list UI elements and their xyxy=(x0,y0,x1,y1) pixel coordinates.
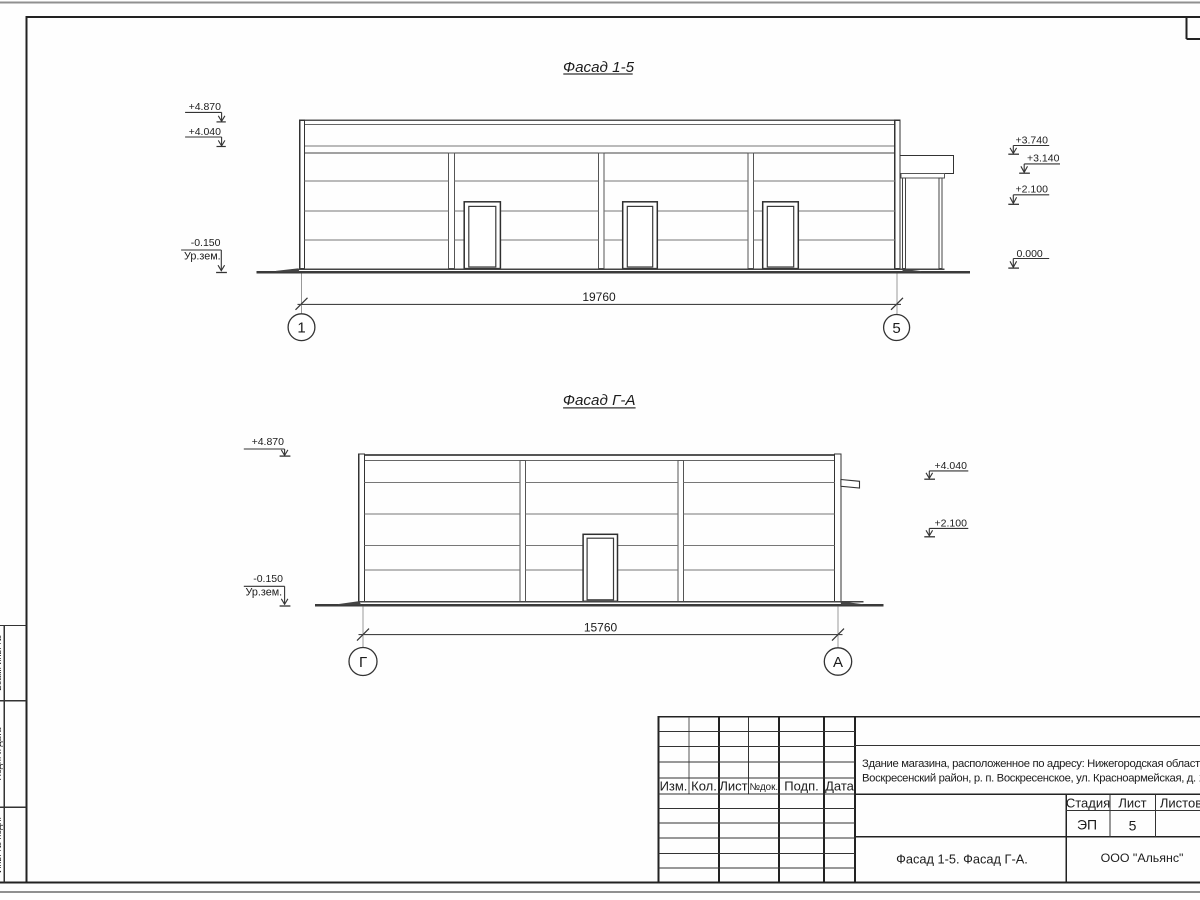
svg-text:5: 5 xyxy=(1129,818,1137,834)
svg-text:Инв. № подл.: Инв. № подл. xyxy=(0,817,3,873)
svg-text:Изм.: Изм. xyxy=(660,779,688,794)
svg-text:5: 5 xyxy=(892,320,900,337)
svg-text:19760: 19760 xyxy=(582,290,616,304)
svg-text:Г: Г xyxy=(359,654,367,671)
svg-text:Лист: Лист xyxy=(1118,796,1146,811)
svg-text:Дата: Дата xyxy=(825,779,855,794)
svg-text:Лист: Лист xyxy=(719,779,747,794)
svg-text:Ур.зем.: Ур.зем. xyxy=(184,251,221,263)
svg-text:ЭП: ЭП xyxy=(1077,817,1097,833)
svg-text:-0.150: -0.150 xyxy=(191,237,221,249)
svg-text:Взам. инв. №: Взам. инв. № xyxy=(0,635,3,691)
svg-text:+4.040: +4.040 xyxy=(189,126,222,138)
svg-text:+4.040: +4.040 xyxy=(935,460,968,472)
svg-text:+3.740: +3.740 xyxy=(1016,134,1049,146)
svg-text:-0.150: -0.150 xyxy=(253,573,283,585)
svg-text:+2.100: +2.100 xyxy=(1016,184,1049,196)
svg-text:Здание магазина, расположенное: Здание магазина, расположенное по адресу… xyxy=(862,758,1200,770)
svg-text:Стадия: Стадия xyxy=(1066,796,1110,811)
svg-text:15760: 15760 xyxy=(584,621,618,635)
svg-text:+4.870: +4.870 xyxy=(189,101,222,113)
svg-text:Подп. и дата: Подп. и дата xyxy=(0,727,3,780)
svg-text:Ур.зем.: Ур.зем. xyxy=(246,587,283,599)
svg-text:Кол.: Кол. xyxy=(691,779,717,794)
svg-text:ООО "Альянс": ООО "Альянс" xyxy=(1101,851,1184,865)
svg-text:+4.870: +4.870 xyxy=(252,436,285,448)
svg-text:Фасад Г-А: Фасад Г-А xyxy=(563,392,636,409)
svg-text:А: А xyxy=(833,654,843,671)
svg-text:Воскресенский район, р. п. Вос: Воскресенский район, р. п. Воскресенское… xyxy=(862,772,1200,784)
svg-text:+3.140: +3.140 xyxy=(1027,153,1060,165)
svg-text:№док.: №док. xyxy=(749,782,778,793)
svg-text:1: 1 xyxy=(297,320,305,337)
svg-text:Подп.: Подп. xyxy=(784,779,819,794)
svg-text:Фасад 1-5: Фасад 1-5 xyxy=(563,59,635,76)
svg-text:Листов: Листов xyxy=(1160,796,1200,811)
svg-text:Фасад 1-5. Фасад Г-А.: Фасад 1-5. Фасад Г-А. xyxy=(896,852,1028,867)
svg-text:+2.100: +2.100 xyxy=(935,517,968,529)
